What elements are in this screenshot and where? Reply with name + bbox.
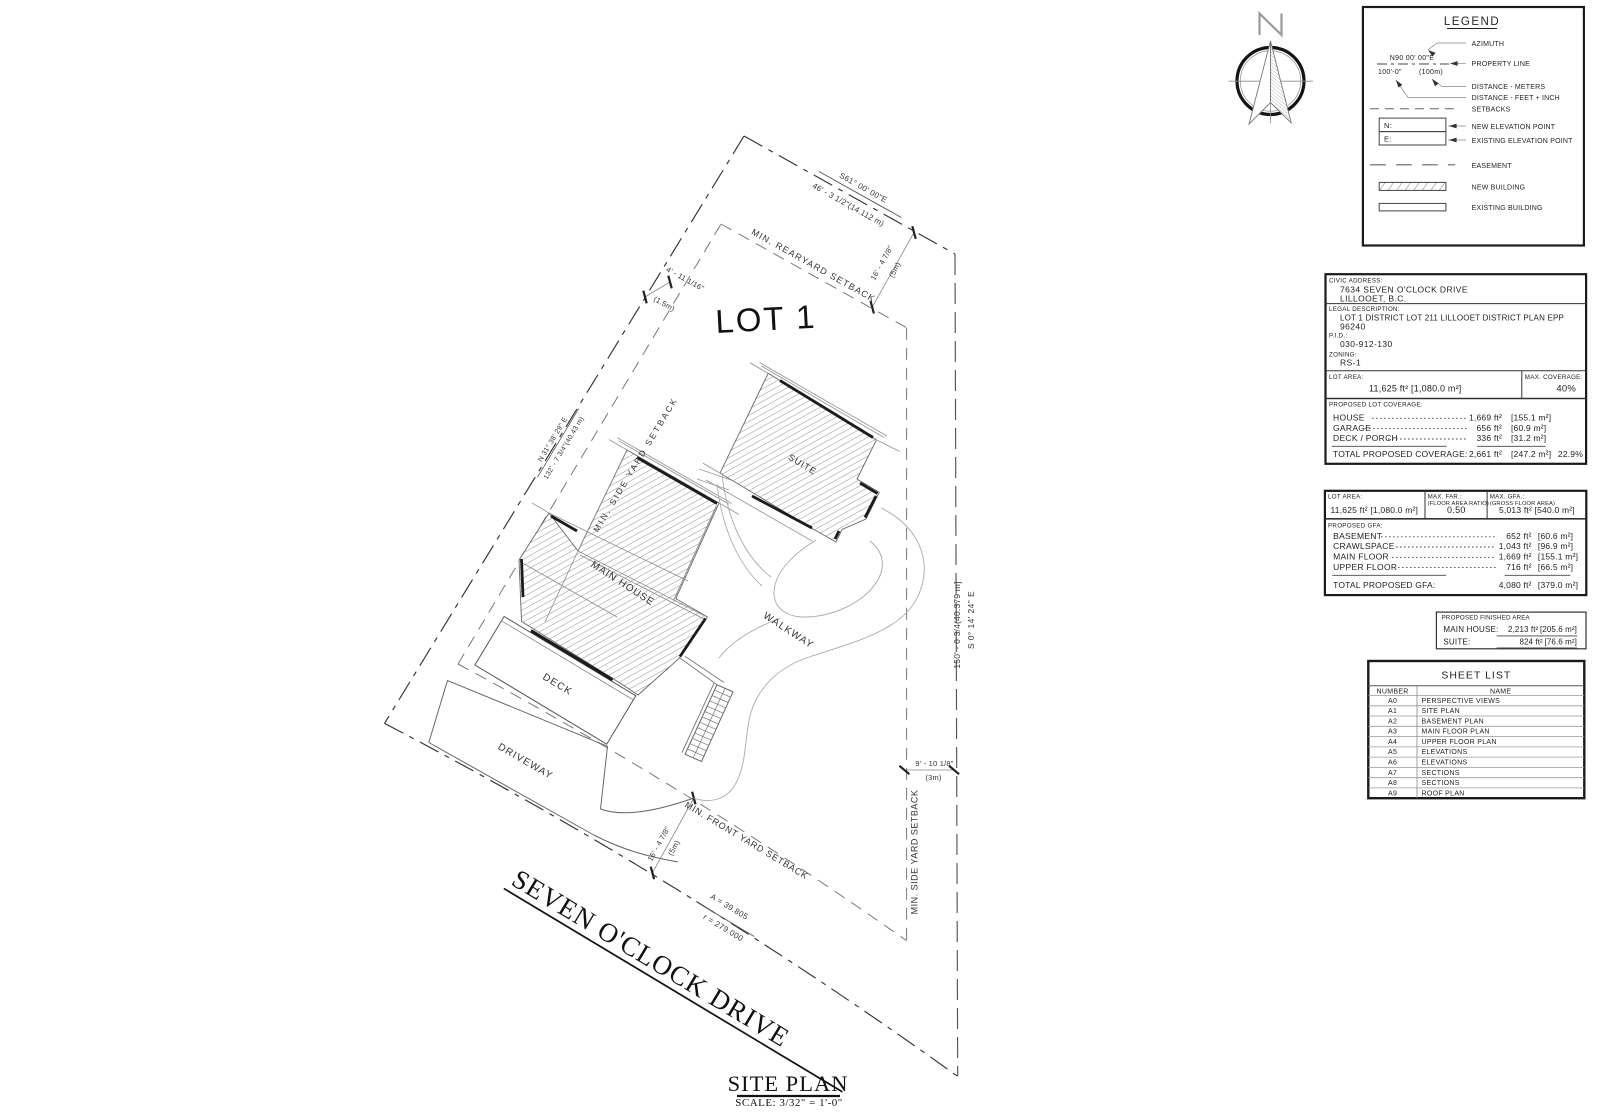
svg-text:PROPOSED LOT COVERAGE:: PROPOSED LOT COVERAGE: [1329, 401, 1423, 408]
svg-text:5,013 ft² [540.0 m²]: 5,013 ft² [540.0 m²] [1499, 505, 1575, 515]
svg-text:[155.1 m²]: [155.1 m²] [1538, 552, 1578, 562]
svg-text:[379.0 m²]: [379.0 m²] [1538, 580, 1578, 590]
svg-text:UPPER FLOOR: UPPER FLOOR [1333, 562, 1397, 572]
svg-text:MIN. SIDE YARD SETBACK: MIN. SIDE YARD SETBACK [910, 790, 920, 915]
svg-text:ELEVATIONS: ELEVATIONS [1422, 749, 1468, 756]
svg-text:0.50: 0.50 [1447, 505, 1466, 515]
svg-text:SECTIONS: SECTIONS [1422, 780, 1460, 787]
svg-text:LEGAL DESCRIPTION:: LEGAL DESCRIPTION: [1329, 306, 1400, 313]
svg-text:NAME: NAME [1490, 688, 1511, 695]
svg-text:SETBACKS: SETBACKS [1472, 107, 1511, 114]
svg-text:336 ft²: 336 ft² [1477, 433, 1503, 443]
svg-text:SITE PLAN: SITE PLAN [1422, 708, 1461, 715]
svg-text:150' - 0 3/4(40.379 m]: 150' - 0 3/4(40.379 m] [952, 581, 962, 668]
svg-text:BASEMENT PLAN: BASEMENT PLAN [1422, 718, 1485, 725]
svg-text:E:: E: [1384, 135, 1392, 144]
svg-text:UPPER FLOOR PLAN: UPPER FLOOR PLAN [1422, 739, 1497, 746]
svg-text:N90 00' 00"E: N90 00' 00"E [1390, 55, 1434, 62]
svg-text:LEGEND: LEGEND [1444, 16, 1500, 28]
svg-text:96240: 96240 [1340, 322, 1366, 332]
svg-text:N:: N: [1384, 121, 1393, 130]
svg-text:A6: A6 [1388, 760, 1397, 767]
svg-text:NEW BUILDING: NEW BUILDING [1472, 185, 1526, 192]
svg-text:LILLOOET, B.C.: LILLOOET, B.C. [1340, 294, 1407, 304]
svg-text:SECTIONS: SECTIONS [1422, 770, 1460, 777]
svg-text:[96.9 m²]: [96.9 m²] [1538, 541, 1573, 551]
svg-text:030-912-130: 030-912-130 [1340, 339, 1393, 349]
svg-text:716 ft²: 716 ft² [1506, 562, 1532, 572]
svg-text:MAIN FLOOR PLAN: MAIN FLOOR PLAN [1422, 729, 1490, 736]
svg-text:[60.6 m²]: [60.6 m²] [1538, 531, 1573, 541]
svg-text:CRAWLSPACE: CRAWLSPACE [1333, 541, 1395, 551]
svg-text:PROPOSED GFA:: PROPOSED GFA: [1328, 523, 1383, 530]
svg-text:MAX. FAR.:: MAX. FAR.: [1428, 494, 1462, 501]
svg-text:[31.2 m²]: [31.2 m²] [1511, 433, 1546, 443]
svg-text:SUITE:: SUITE: [1443, 638, 1470, 647]
svg-text:PERSPECTIVE VIEWS: PERSPECTIVE VIEWS [1422, 698, 1501, 705]
svg-text:1,669 ft²: 1,669 ft² [1469, 413, 1502, 423]
svg-text:RS-1: RS-1 [1340, 358, 1361, 368]
svg-text:A3: A3 [1388, 729, 1397, 736]
svg-text:SITE PLAN: SITE PLAN [728, 1071, 849, 1096]
svg-text:EASEMENT: EASEMENT [1472, 163, 1513, 170]
svg-text:[60.9 m²]: [60.9 m²] [1511, 423, 1546, 433]
svg-text:SHEET LIST: SHEET LIST [1441, 670, 1511, 682]
svg-text:ROOF PLAN: ROOF PLAN [1422, 790, 1465, 797]
svg-text:2,661 ft²: 2,661 ft² [1469, 449, 1502, 459]
svg-text:2,213 ft² [205.6 m²]: 2,213 ft² [205.6 m²] [1508, 625, 1577, 634]
svg-text:A9: A9 [1388, 790, 1397, 797]
svg-text:LOT 1: LOT 1 [714, 298, 817, 340]
svg-text:(3m): (3m) [925, 773, 942, 782]
svg-text:A0: A0 [1388, 698, 1397, 705]
svg-text:(100m): (100m) [1419, 69, 1443, 76]
svg-text:A1: A1 [1388, 708, 1397, 715]
svg-text:A2: A2 [1388, 718, 1397, 725]
svg-text:MAIN HOUSE:: MAIN HOUSE: [1443, 625, 1498, 634]
svg-text:LOT AREA:: LOT AREA: [1329, 374, 1364, 381]
svg-text:4,080 ft²: 4,080 ft² [1499, 580, 1532, 590]
svg-text:EXISTING ELEVATION POINT: EXISTING ELEVATION POINT [1472, 138, 1574, 145]
svg-text:LOT 1 DISTRICT LOT 211 LILLOOE: LOT 1 DISTRICT LOT 211 LILLOOET DISTRICT… [1340, 314, 1564, 323]
svg-text:TOTAL PROPOSED COVERAGE:: TOTAL PROPOSED COVERAGE: [1333, 449, 1468, 459]
svg-text:CIVIC ADDRESS:: CIVIC ADDRESS: [1329, 278, 1383, 285]
svg-text:MAX. COVERAGE:: MAX. COVERAGE: [1525, 374, 1583, 381]
svg-text:HOUSE: HOUSE [1333, 413, 1365, 423]
svg-text:SCALE: 3/32" = 1'-0": SCALE: 3/32" = 1'-0" [735, 1097, 843, 1109]
svg-text:GARAGE: GARAGE [1333, 423, 1371, 433]
svg-text:DISTANCE - FEET + INCH: DISTANCE - FEET + INCH [1472, 95, 1560, 102]
svg-text:DISTANCE - METERS: DISTANCE - METERS [1472, 84, 1546, 91]
svg-text:ELEVATIONS: ELEVATIONS [1422, 760, 1468, 767]
svg-text:BASEMENT: BASEMENT [1333, 531, 1382, 541]
svg-text:[66.5 m²]: [66.5 m²] [1538, 562, 1573, 572]
svg-text:A5: A5 [1388, 749, 1397, 756]
svg-text:652 ft²: 652 ft² [1506, 531, 1532, 541]
svg-text:MAX. GFA.:: MAX. GFA.: [1490, 494, 1525, 501]
svg-text:100'-0": 100'-0" [1378, 69, 1402, 76]
svg-text:PROPOSED FINISHED AREA: PROPOSED FINISHED AREA [1442, 615, 1531, 622]
svg-text:EXISTING BUILDING: EXISTING BUILDING [1472, 205, 1543, 212]
svg-text:1,043 ft²: 1,043 ft² [1499, 541, 1532, 551]
svg-text:AZIMUTH: AZIMUTH [1472, 41, 1505, 48]
svg-text:[247.2 m²]: [247.2 m²] [1511, 449, 1551, 459]
svg-text:[155.1 m²]: [155.1 m²] [1511, 413, 1551, 423]
svg-text:A4: A4 [1388, 739, 1397, 746]
svg-text:PROPERTY LINE: PROPERTY LINE [1472, 61, 1530, 68]
svg-text:11,625 ft² [1,080.0 m²]: 11,625 ft² [1,080.0 m²] [1331, 505, 1419, 515]
svg-text:LOT AREA:: LOT AREA: [1328, 494, 1363, 501]
svg-text:22.9%: 22.9% [1558, 449, 1583, 459]
svg-text:NEW ELEVATION POINT: NEW ELEVATION POINT [1472, 124, 1556, 131]
svg-text:11,625 ft² [1,080.0 m²]: 11,625 ft² [1,080.0 m²] [1369, 384, 1461, 394]
svg-text:A7: A7 [1388, 770, 1397, 777]
svg-text:A8: A8 [1388, 780, 1397, 787]
svg-text:TOTAL PROPOSED GFA:: TOTAL PROPOSED GFA: [1333, 580, 1435, 590]
svg-text:824 ft² [76.6 m²]: 824 ft² [76.6 m²] [1519, 638, 1577, 647]
svg-text:S 0° 14' 24" E: S 0° 14' 24" E [966, 591, 976, 649]
svg-text:NUMBER: NUMBER [1377, 688, 1409, 695]
svg-text:9' - 10 1/8": 9' - 10 1/8" [915, 759, 953, 768]
svg-text:DECK / PORCH: DECK / PORCH [1333, 433, 1398, 443]
svg-text:40%: 40% [1556, 384, 1576, 395]
svg-text:656 ft²: 656 ft² [1477, 423, 1503, 433]
svg-text:MAIN FLOOR: MAIN FLOOR [1333, 552, 1389, 562]
svg-text:1,669 ft²: 1,669 ft² [1499, 552, 1532, 562]
